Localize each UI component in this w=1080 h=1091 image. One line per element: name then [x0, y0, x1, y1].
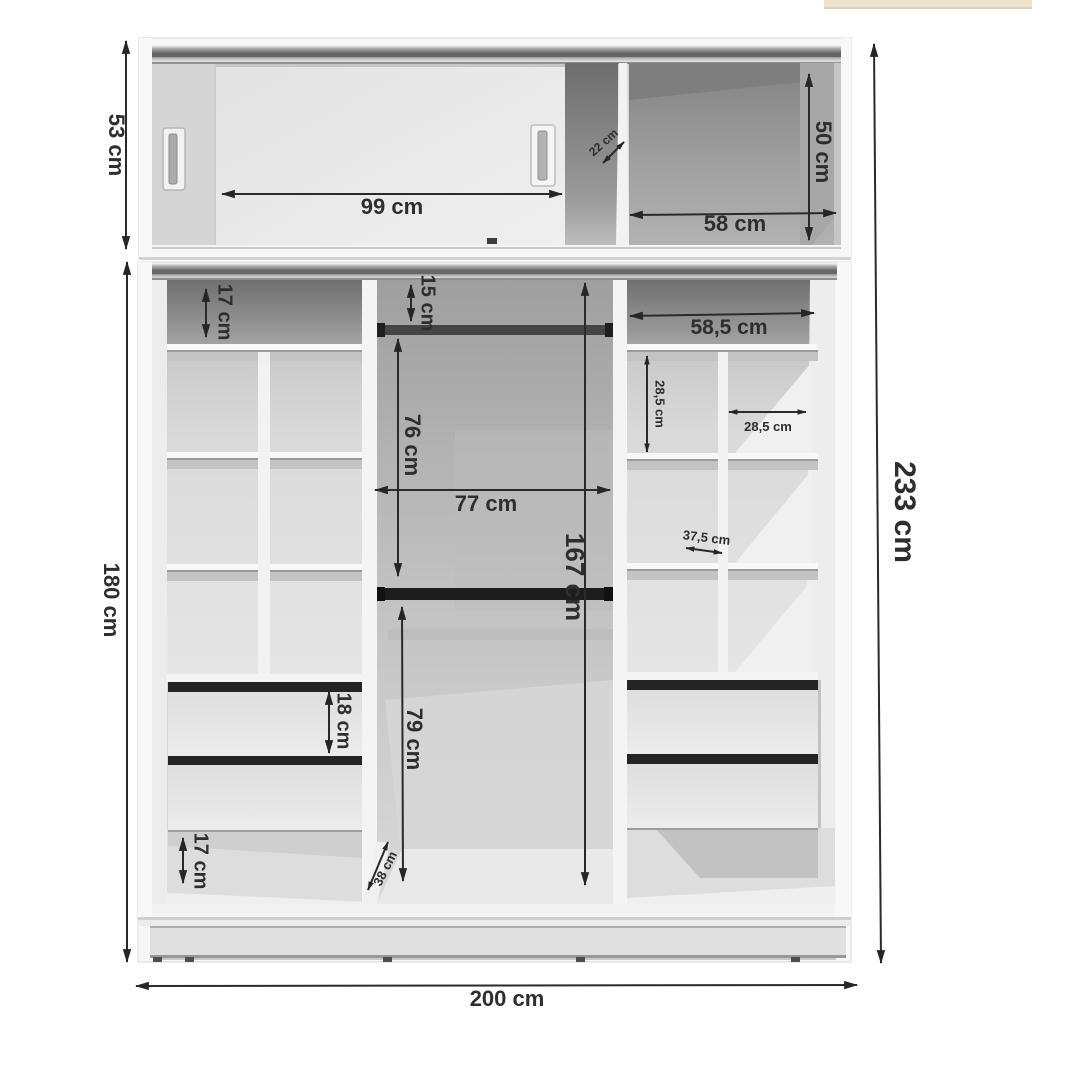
- svg-text:28,5 cm: 28,5 cm: [653, 380, 668, 428]
- svg-text:50 cm: 50 cm: [811, 121, 836, 183]
- svg-text:233 cm: 233 cm: [888, 461, 921, 563]
- svg-text:76 cm: 76 cm: [400, 414, 425, 476]
- svg-text:167 cm: 167 cm: [560, 533, 590, 621]
- svg-text:79 cm: 79 cm: [402, 708, 427, 770]
- svg-text:53 cm: 53 cm: [104, 114, 129, 176]
- svg-text:180 cm: 180 cm: [99, 563, 124, 638]
- svg-text:28,5 cm: 28,5 cm: [744, 419, 792, 434]
- svg-text:18 cm: 18 cm: [333, 693, 355, 750]
- svg-text:200 cm: 200 cm: [470, 986, 545, 1011]
- svg-text:17 cm: 17 cm: [214, 284, 236, 341]
- svg-text:58 cm: 58 cm: [704, 211, 766, 236]
- svg-text:17 cm: 17 cm: [190, 833, 212, 890]
- svg-text:77 cm: 77 cm: [455, 491, 517, 516]
- svg-text:15 cm: 15 cm: [417, 275, 439, 332]
- svg-text:99 cm: 99 cm: [361, 194, 423, 219]
- svg-text:58,5 cm: 58,5 cm: [690, 316, 767, 339]
